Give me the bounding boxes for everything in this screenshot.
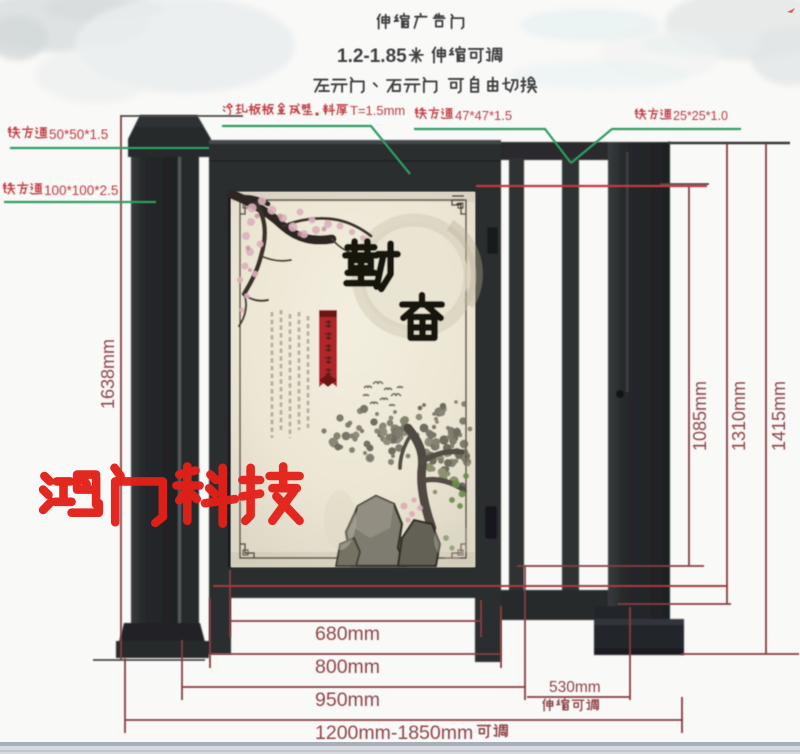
svg-text:100*100*2.5: 100*100*2.5	[44, 183, 118, 198]
svg-text:47*47*1.5: 47*47*1.5	[455, 108, 512, 123]
svg-text:800mm: 800mm	[315, 656, 380, 678]
svg-text:1.2-1.85: 1.2-1.85	[337, 46, 407, 67]
svg-text:680mm: 680mm	[315, 623, 380, 645]
svg-text:T=1.5mm: T=1.5mm	[350, 103, 405, 118]
svg-text:1415mm: 1415mm	[769, 381, 789, 451]
svg-text:25*25*1.0: 25*25*1.0	[673, 109, 728, 123]
svg-text:1310mm: 1310mm	[729, 381, 749, 451]
svg-text:50*50*1.5: 50*50*1.5	[49, 127, 108, 142]
svg-text:1085mm: 1085mm	[690, 381, 710, 451]
svg-text:530mm: 530mm	[549, 679, 601, 696]
svg-text:1200mm-1850mm: 1200mm-1850mm	[315, 722, 473, 744]
svg-text:1638mm: 1638mm	[98, 339, 118, 409]
svg-text:950mm: 950mm	[315, 689, 380, 711]
